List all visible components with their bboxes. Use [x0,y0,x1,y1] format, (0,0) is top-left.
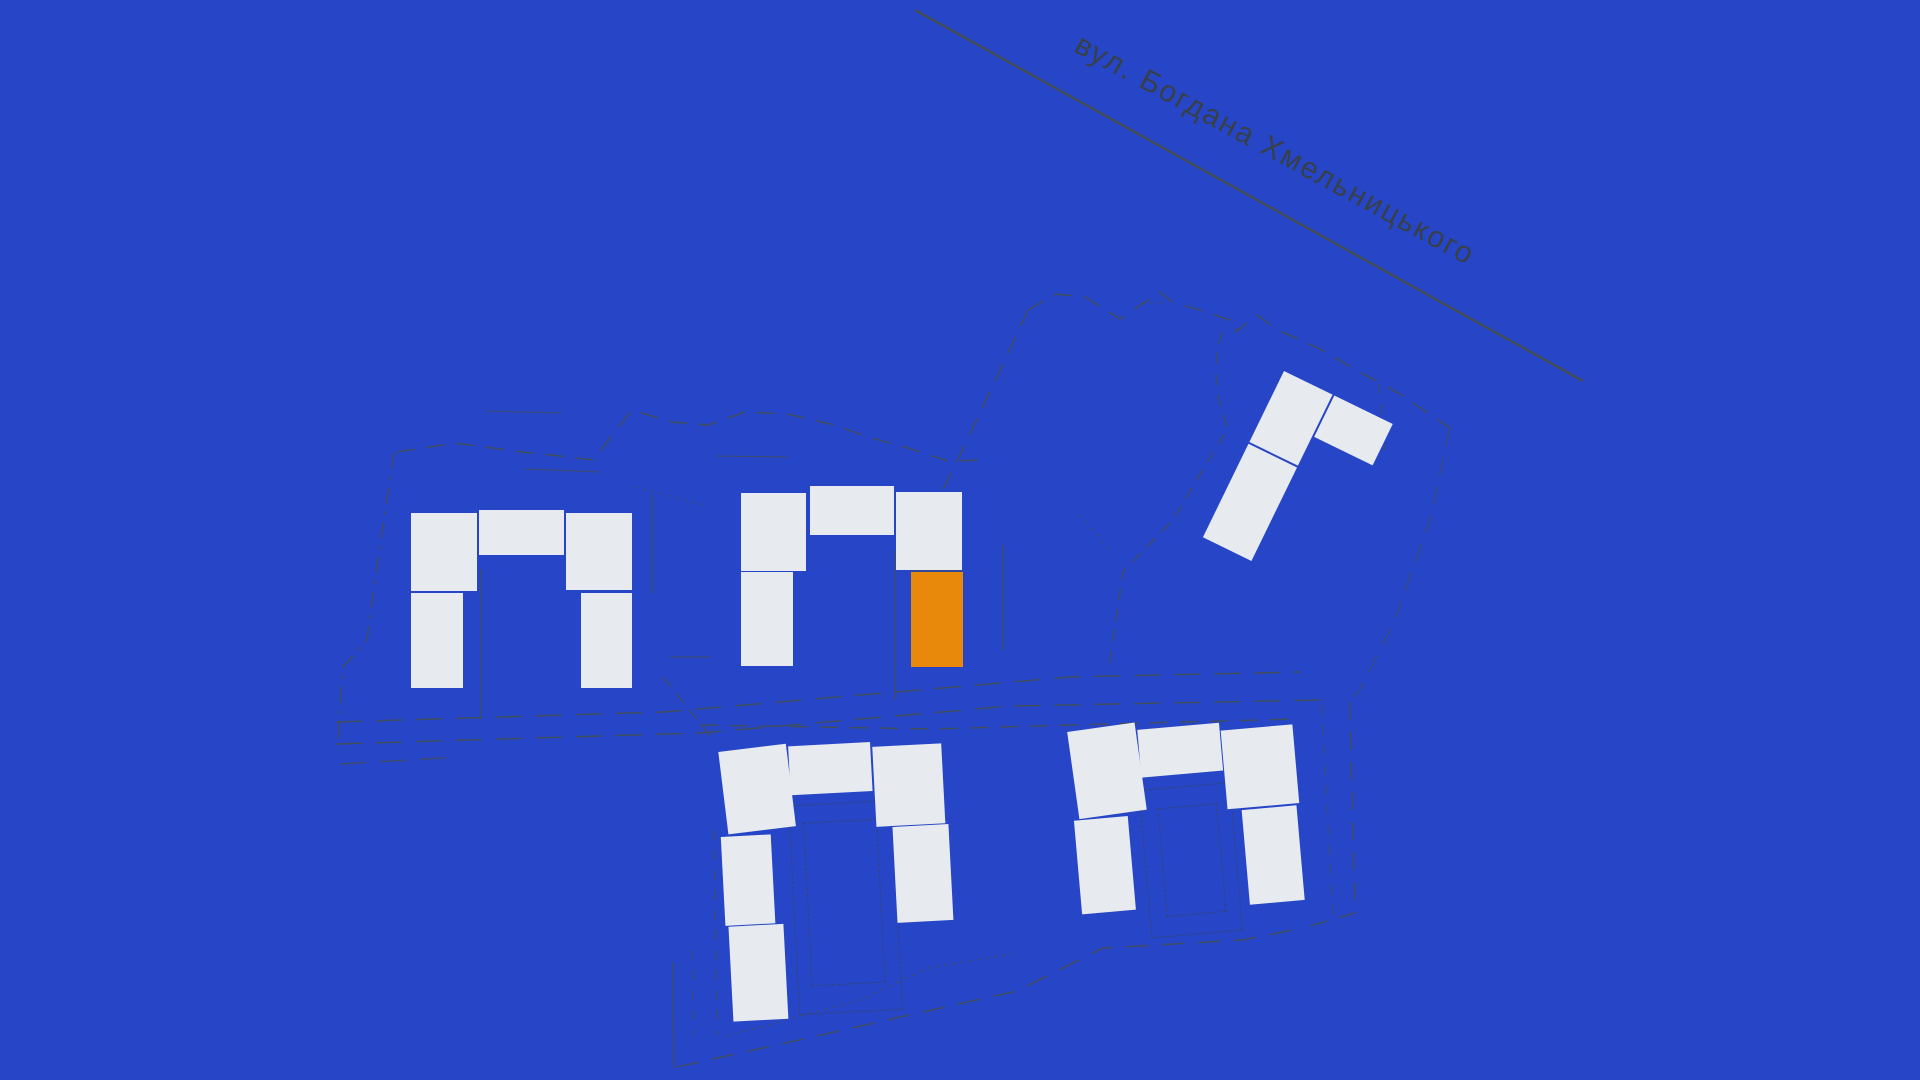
building-section[interactable] [1074,816,1136,914]
building-section[interactable] [1137,723,1223,778]
building-section[interactable] [896,492,962,570]
courtyard-outline [803,819,885,987]
building-section[interactable] [741,493,806,571]
building-section[interactable] [892,824,953,923]
building-section-selected[interactable] [911,572,963,667]
courtyard-outline [1157,803,1226,917]
building-section[interactable] [411,513,477,591]
building-section[interactable] [581,593,632,688]
building-section[interactable] [718,744,796,835]
buildings-layer [0,0,1920,1080]
building-section[interactable] [788,742,872,795]
building-section[interactable] [411,593,463,688]
building-section[interactable] [872,743,945,827]
building-section[interactable] [810,486,894,535]
building-section[interactable] [1242,805,1305,904]
building-section[interactable] [1221,724,1300,809]
building-section[interactable] [1203,444,1297,561]
building-section[interactable] [728,924,788,1022]
building-section[interactable] [721,834,776,925]
building-section[interactable] [566,513,632,590]
building-section[interactable] [741,572,793,666]
site-plan-map: вул. Богдана Хмельницького [0,0,1920,1080]
building-section[interactable] [1067,723,1147,820]
building-section[interactable] [479,510,564,555]
